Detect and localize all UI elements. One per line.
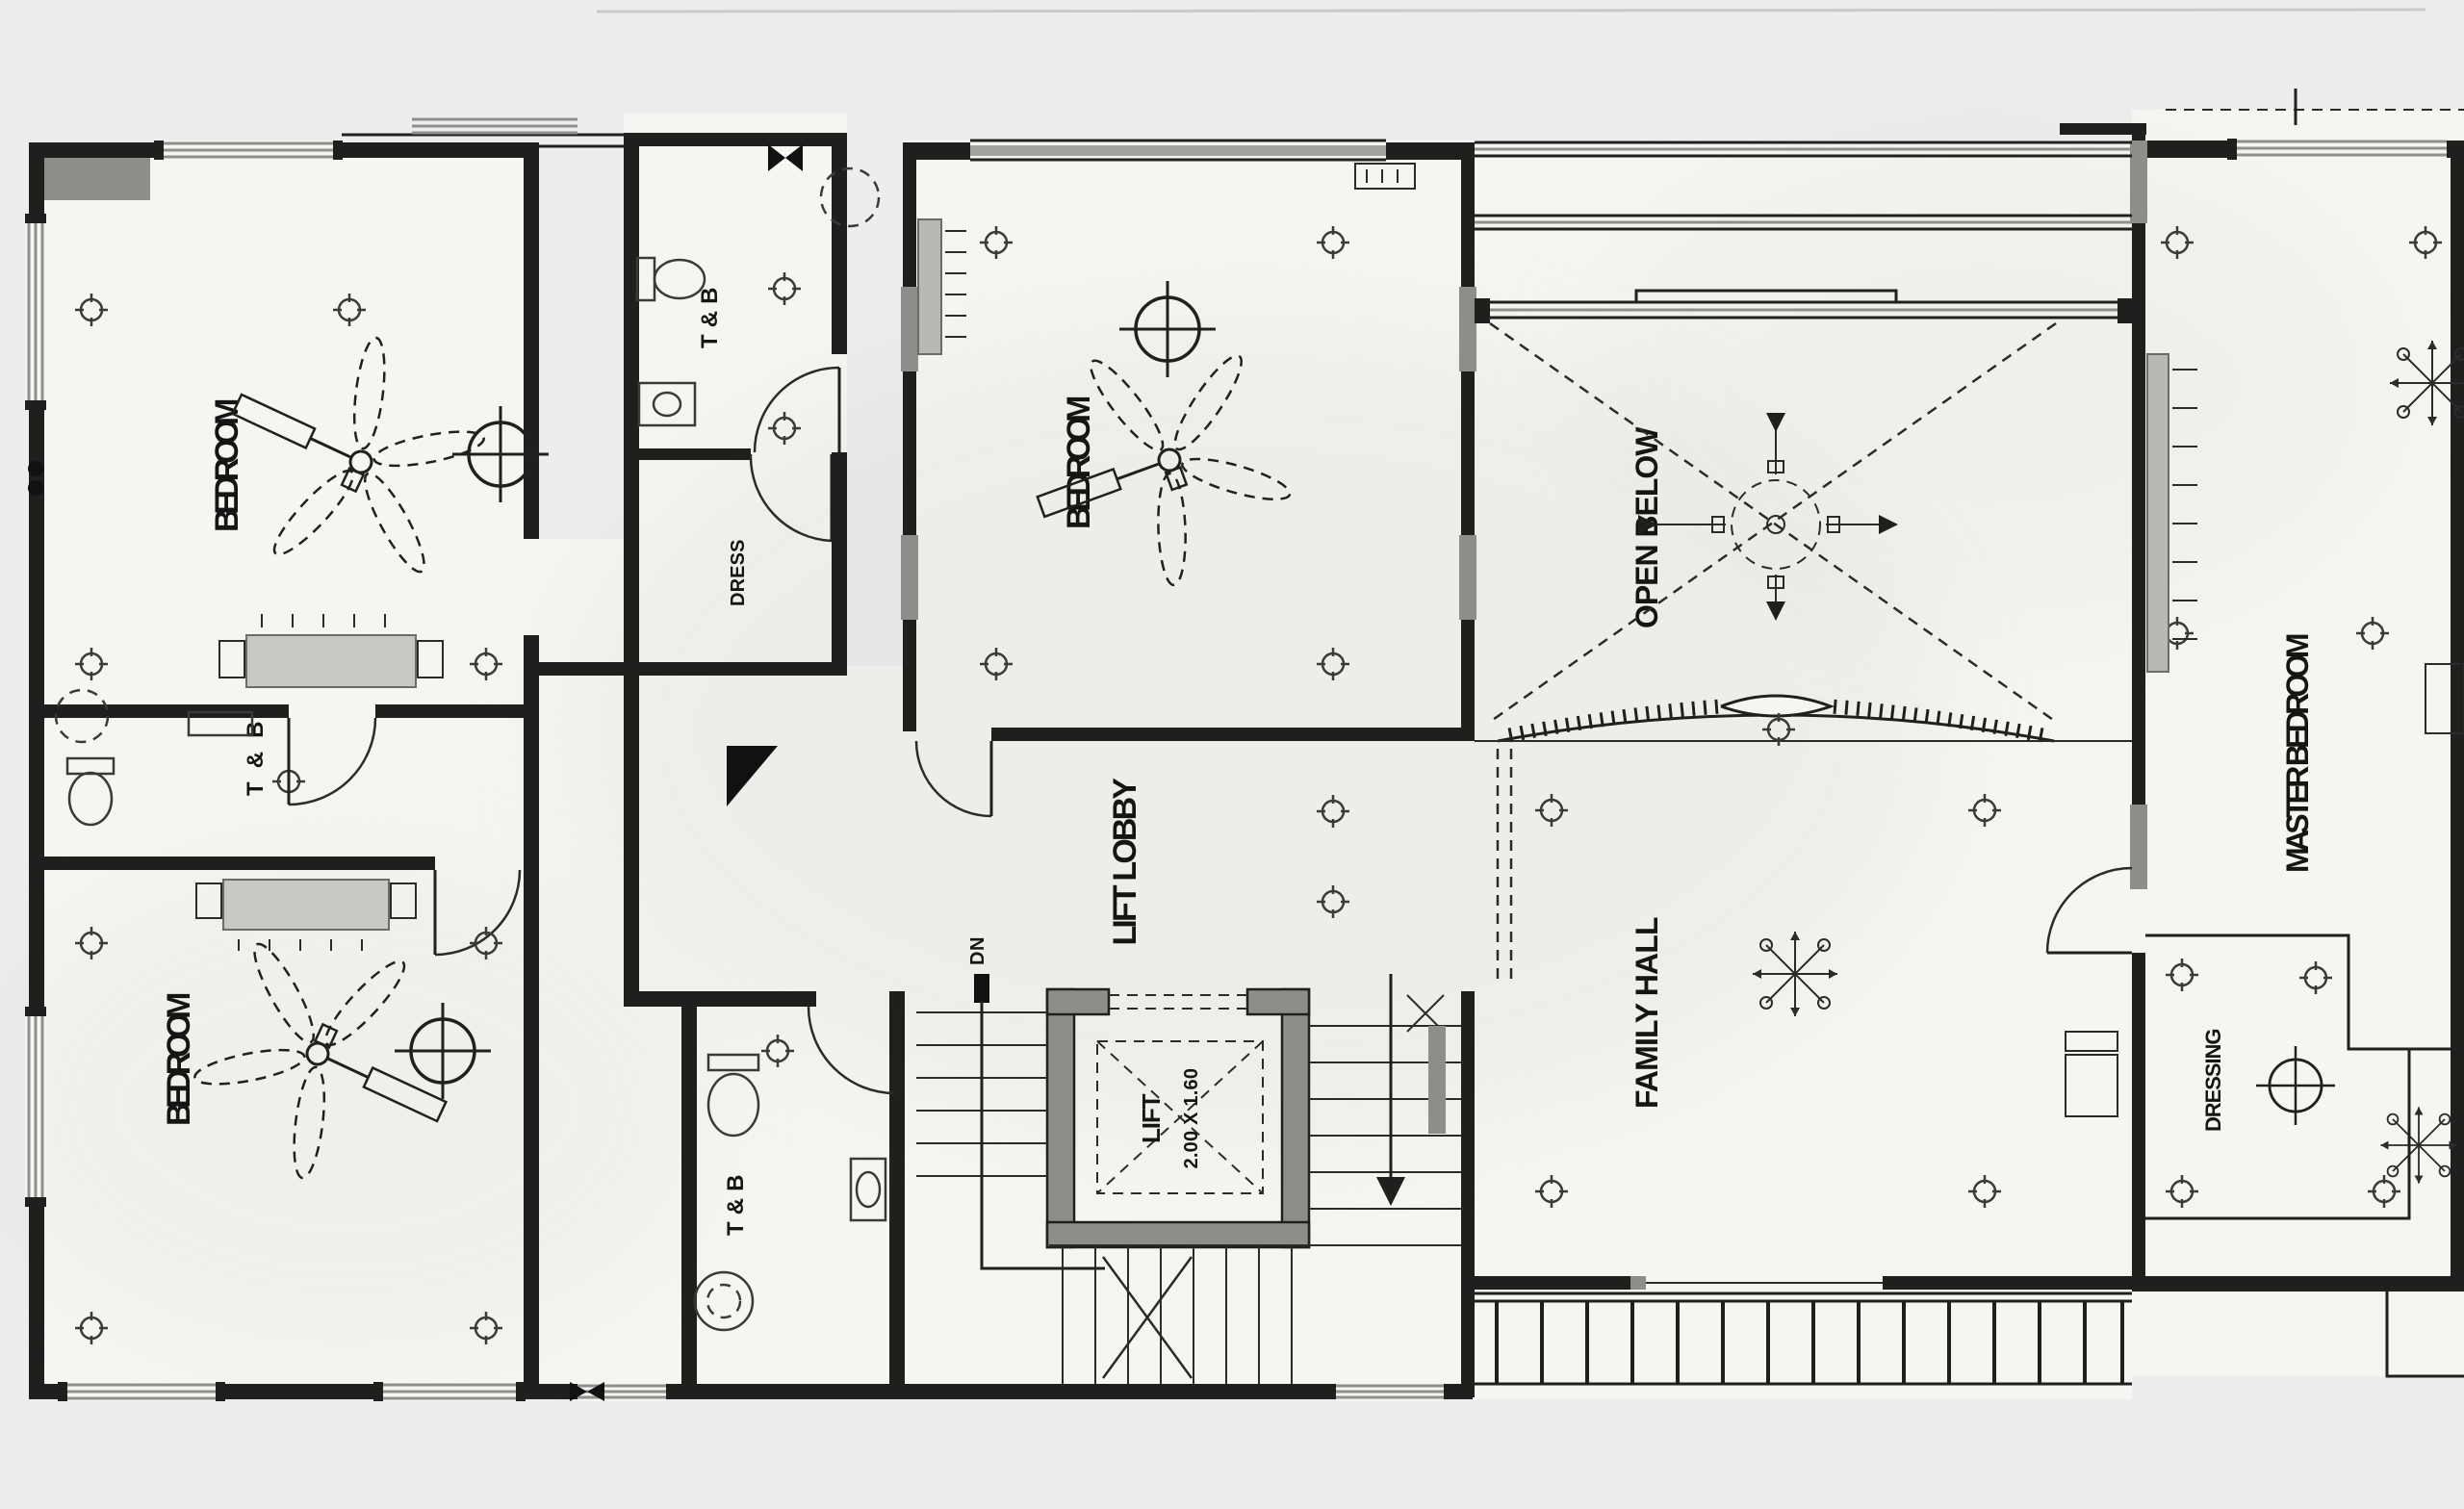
area-label: OPEN BELOW [1630, 426, 1664, 628]
window-central-top [970, 139, 1386, 162]
window-master-top [2227, 139, 2447, 160]
floor-plan-drawing: BEDROOM T & B BEDROOM T&B [0, 0, 2464, 1509]
room-label: BEDROOM [161, 991, 197, 1126]
window-bottom-left-b [373, 1382, 526, 1401]
room-label: MASTER BEDROOM [2280, 632, 2315, 873]
stair-down-label: DN [967, 936, 988, 965]
room-label: T&B [723, 1174, 749, 1236]
window-top-left [154, 141, 343, 160]
window-bottom-stair-b [1336, 1382, 1444, 1401]
window-left-lower [25, 1007, 46, 1207]
room-label: DRESSING [2201, 1028, 2225, 1132]
room-label: T&B [697, 287, 723, 348]
lift-size-label: 2.00 X 1.60 [1181, 1068, 1202, 1169]
room-label: T & B [243, 721, 269, 796]
room-label: FAMILY HALL [1630, 916, 1664, 1109]
window-left-upper [25, 214, 46, 410]
room-label: LIFT LOBBY [1107, 778, 1143, 946]
lift-label: LIFT [1137, 1093, 1166, 1143]
room-label: DRESS [728, 539, 749, 606]
floor-plan-scan: BEDROOM T & B BEDROOM T&B [0, 0, 2464, 1509]
handrail [1428, 1026, 1446, 1134]
window-bottom-left-a [58, 1382, 225, 1401]
